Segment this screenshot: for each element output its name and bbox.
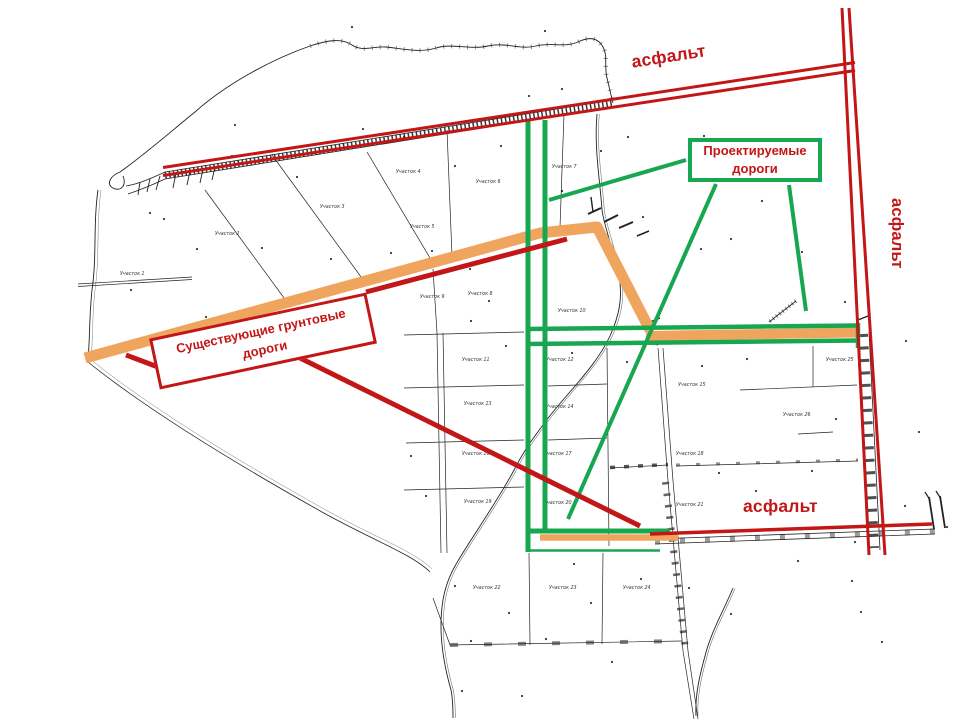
parcel-label: Участок 9 [420,294,445,300]
parcel-label: Участок 10 [558,308,586,314]
parcel-label: Участок 2 [215,231,240,237]
site-plan-svg: Участок 1 Участок 2 Участок 3 Участок 4 … [0,0,960,720]
parcel-label: Участок 3 [320,204,345,210]
asphalt-road-right [842,8,885,555]
parcel-label: Участок 15 [678,382,706,388]
parcel-label: Участок 26 [783,412,811,418]
parcel-labels: Участок 1 Участок 2 Участок 3 Участок 4 … [120,164,854,591]
parcel-label: Участок 20 [544,500,572,506]
parcel-label: Участок 24 [623,585,651,591]
site-plan-slide: Участок 1 Участок 2 Участок 3 Участок 4 … [0,0,960,720]
parcel-label: Участок 7 [552,164,577,170]
parcel-label: Участок 22 [473,585,501,591]
asphalt-label-bottom: асфальт [743,496,818,517]
projected-road-middle [526,323,858,348]
parcel-label: Участок 12 [546,357,574,363]
parcel-label: Участок 5 [410,224,435,230]
parcel-label: Участок 1 [120,271,145,277]
legend-projected-line1: Проектируемые [692,142,818,160]
parcel-label: Участок 8 [468,291,493,297]
projected-road-vertical [528,120,545,552]
parcel-label: Участок 25 [826,357,854,363]
parcel-label: Участок 6 [476,179,501,185]
legend-projected-line2: дороги [692,160,818,178]
parcel-label: Участок 13 [464,401,492,407]
parcel-label: Участок 11 [462,357,490,363]
parcel-label: Участок 17 [544,451,572,457]
parcel-label: Участок 14 [546,404,574,410]
parcel-label: Участок 4 [396,169,421,175]
asphalt-label-right: асфальт [887,198,906,269]
parcel-label: Участок 18 [676,451,704,457]
parcel-label: Участок 21 [676,502,704,508]
asphalt-road-bottom [650,524,932,534]
parcel-label: Участок 19 [464,499,492,505]
existing-roads-arrows [126,239,640,526]
legend-projected-roads-box: Проектируемые дороги [688,138,822,182]
parcel-label: Участок 23 [549,585,577,591]
